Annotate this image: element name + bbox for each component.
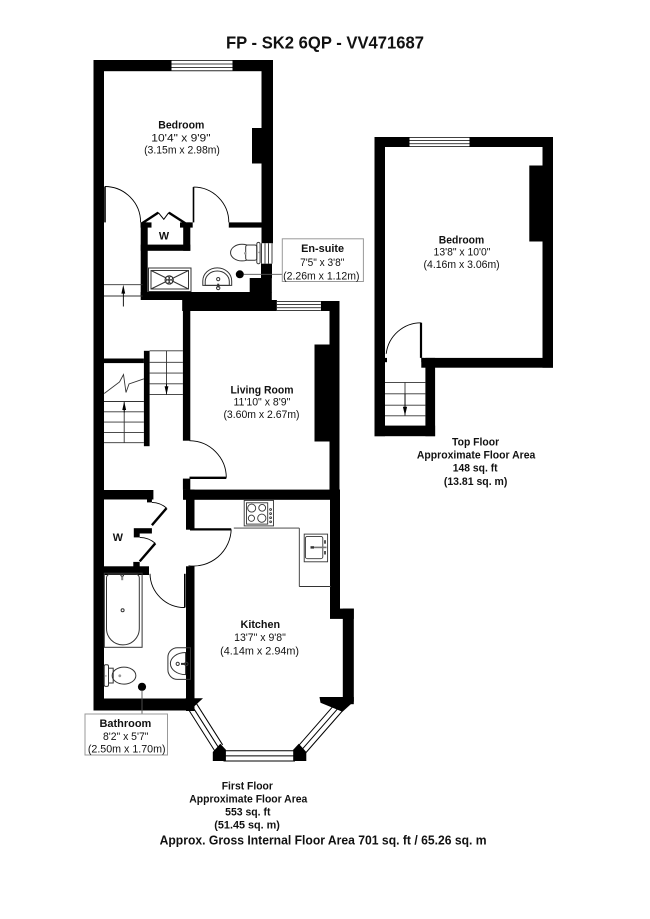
svg-text:Kitchen: Kitchen bbox=[241, 619, 281, 631]
svg-text:Approx. Gross Internal Floor A: Approx. Gross Internal Floor Area 701 sq… bbox=[160, 833, 487, 848]
svg-text:Bathroom: Bathroom bbox=[100, 718, 152, 730]
svg-text:11'10" x 8'9": 11'10" x 8'9" bbox=[233, 397, 290, 409]
svg-text:(3.15m x 2.98m): (3.15m x 2.98m) bbox=[144, 145, 220, 157]
svg-text:13'8" x 10'0": 13'8" x 10'0" bbox=[434, 246, 491, 258]
svg-text:13'7" x 9'8": 13'7" x 9'8" bbox=[234, 632, 286, 644]
svg-text:8'2" x 5'7": 8'2" x 5'7" bbox=[103, 731, 149, 743]
svg-text:(2.50m x 1.70m): (2.50m x 1.70m) bbox=[88, 743, 166, 755]
svg-text:Bedroom: Bedroom bbox=[158, 120, 204, 132]
svg-text:Living Room: Living Room bbox=[230, 384, 293, 396]
svg-text:En-suite: En-suite bbox=[301, 243, 344, 255]
svg-text:7'5" x 3'8": 7'5" x 3'8" bbox=[300, 257, 344, 269]
svg-text:553 sq. ft: 553 sq. ft bbox=[225, 806, 271, 818]
svg-text:(2.26m x 1.12m): (2.26m x 1.12m) bbox=[283, 271, 359, 283]
svg-text:Top Floor: Top Floor bbox=[452, 437, 500, 449]
svg-text:Bedroom: Bedroom bbox=[439, 235, 484, 247]
svg-text:(13.81 sq. m): (13.81 sq. m) bbox=[444, 476, 508, 488]
svg-text:Approximate Floor Area: Approximate Floor Area bbox=[417, 450, 536, 462]
svg-text:(4.16m x 3.06m): (4.16m x 3.06m) bbox=[424, 259, 500, 271]
svg-text:Approximate Floor Area: Approximate Floor Area bbox=[189, 793, 308, 805]
svg-text:W: W bbox=[113, 532, 124, 544]
svg-text:148 sq. ft: 148 sq. ft bbox=[453, 463, 498, 475]
svg-text:FP - SK2 6QP - VV471687: FP - SK2 6QP - VV471687 bbox=[226, 33, 424, 53]
svg-text:(4.14m x 2.94m): (4.14m x 2.94m) bbox=[220, 646, 299, 658]
svg-text:W: W bbox=[159, 230, 170, 242]
svg-text:(3.60m x 2.67m): (3.60m x 2.67m) bbox=[223, 409, 299, 421]
svg-text:First Floor: First Floor bbox=[222, 780, 274, 792]
svg-text:(51.45 sq. m): (51.45 sq. m) bbox=[214, 820, 280, 832]
svg-text:10'4" x 9'9": 10'4" x 9'9" bbox=[151, 132, 210, 144]
